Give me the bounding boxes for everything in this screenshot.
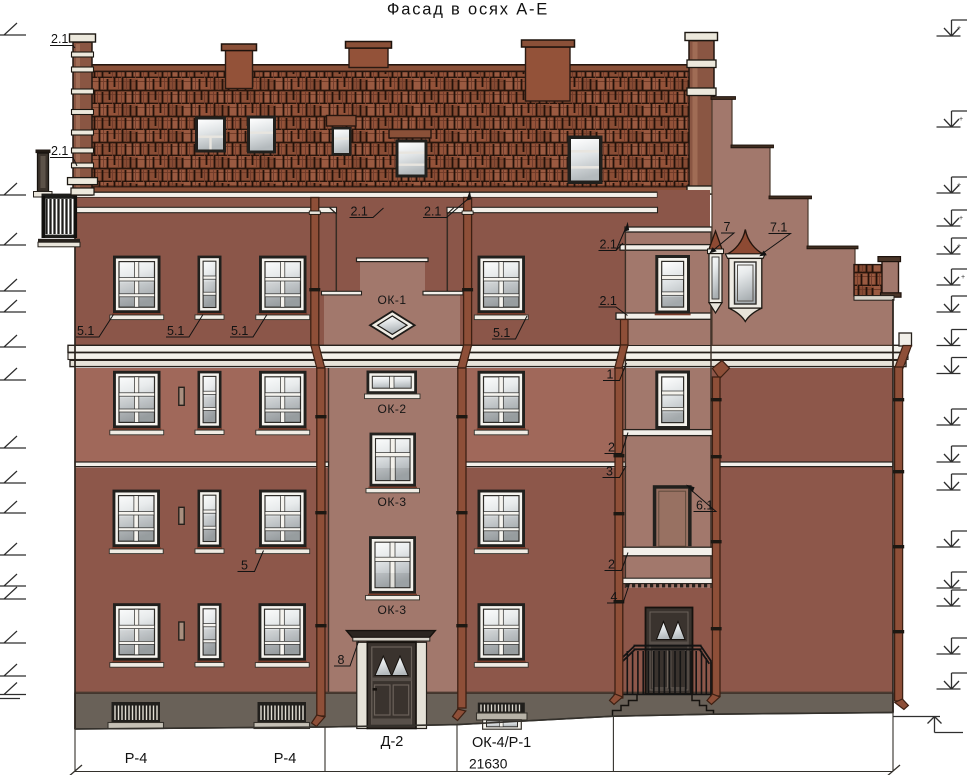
svg-text:3: 3: [606, 465, 613, 479]
svg-text:8: 8: [338, 653, 345, 667]
svg-text:1: 1: [607, 368, 614, 382]
svg-text:5: 5: [241, 559, 248, 573]
svg-text:2.1: 2.1: [600, 294, 617, 308]
svg-text:2.1: 2.1: [351, 205, 368, 219]
svg-text:4: 4: [611, 590, 618, 604]
svg-text:Р-4: Р-4: [274, 751, 297, 767]
svg-text:+: +: [959, 215, 963, 222]
svg-text:6.1: 6.1: [696, 499, 713, 513]
svg-text:+: +: [957, 25, 961, 32]
svg-text:7.1: 7.1: [770, 221, 787, 235]
svg-text:2.1: 2.1: [51, 144, 68, 158]
svg-text:2.1: 2.1: [51, 32, 68, 46]
svg-text:2: 2: [608, 558, 615, 572]
svg-text:ОК-4/Р-1: ОК-4/Р-1: [472, 735, 531, 751]
svg-text:+: +: [961, 274, 965, 281]
svg-text:+: +: [959, 116, 963, 123]
svg-text:ОК-3: ОК-3: [378, 495, 407, 509]
svg-text:2.1: 2.1: [424, 205, 441, 219]
svg-text:ОК-1: ОК-1: [378, 293, 407, 307]
svg-text:ОК-2: ОК-2: [378, 402, 407, 416]
svg-text:5.1: 5.1: [77, 324, 94, 338]
svg-text:7: 7: [724, 220, 731, 234]
svg-text:5.1: 5.1: [167, 324, 184, 338]
svg-text:Р-4: Р-4: [125, 751, 148, 767]
svg-text:5.1: 5.1: [231, 324, 248, 338]
svg-text:Фасад в осях А-Е: Фасад в осях А-Е: [387, 1, 549, 19]
svg-text:+: +: [957, 182, 961, 189]
svg-text:5.1: 5.1: [493, 326, 510, 340]
svg-text:Д-2: Д-2: [381, 734, 404, 750]
svg-text:ОК-3: ОК-3: [378, 603, 407, 617]
svg-text:2: 2: [608, 441, 615, 455]
svg-text:+: +: [957, 243, 961, 250]
svg-text:2.1: 2.1: [600, 238, 617, 252]
svg-text:21630: 21630: [469, 757, 508, 772]
